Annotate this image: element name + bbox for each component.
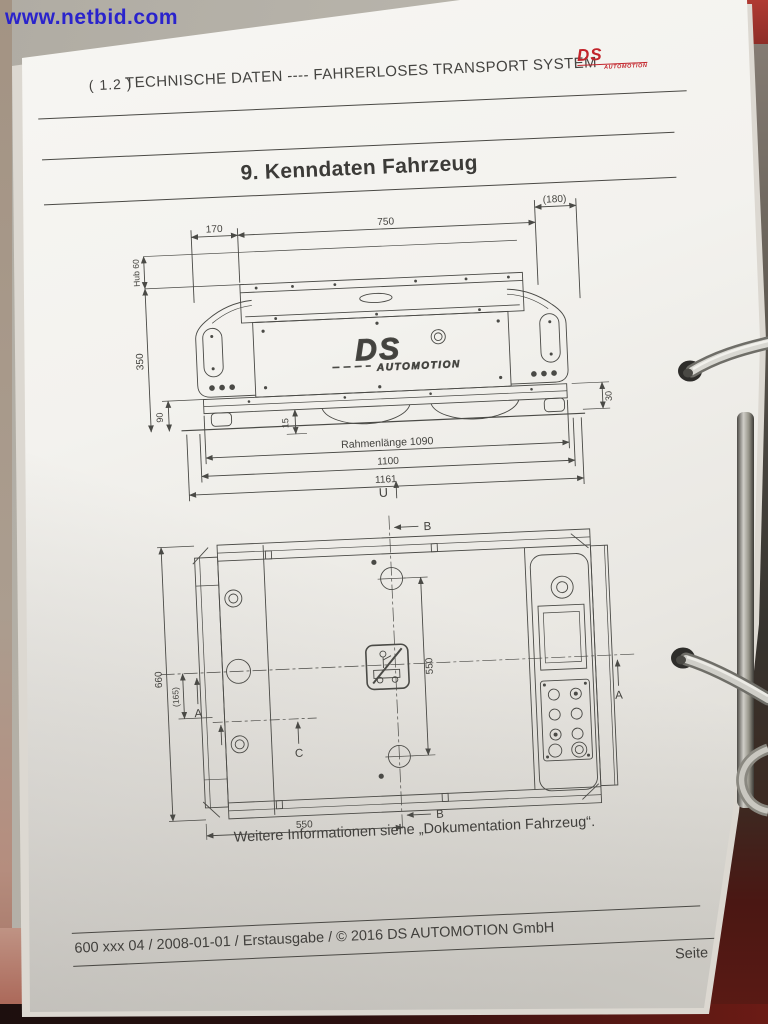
section-title: 9. Kenndaten Fahrzeug bbox=[240, 151, 478, 185]
dim-1161: 1161 bbox=[375, 474, 398, 486]
side-view-drawing: DS AUTOMOTION 170 750 (180) Hub 60 350 9… bbox=[119, 187, 637, 512]
top-view-centerlines bbox=[154, 505, 641, 839]
label-u: U bbox=[379, 486, 389, 500]
footer-document-id: 600 xxx 04 / 2008-01-01 / Erstausgabe / … bbox=[74, 920, 555, 957]
photo-left-edge bbox=[0, 0, 12, 1024]
vehicle-side-view: DS AUTOMOTION bbox=[175, 270, 585, 432]
body-logo-automotion: AUTOMOTION bbox=[376, 359, 461, 374]
binder-rod bbox=[737, 412, 754, 808]
no-riding-pictogram bbox=[366, 644, 410, 690]
dim-1100: 1100 bbox=[377, 456, 400, 468]
photo-of-manual-page: ( 1.2 ) TECHNISCHE DATEN ---- FAHRERLOSE… bbox=[0, 0, 768, 1024]
netbid-watermark: www.netbid.com bbox=[5, 6, 178, 30]
label-b-top: B bbox=[423, 521, 432, 533]
dim-90: 90 bbox=[155, 412, 165, 423]
vehicle-top-view bbox=[192, 528, 619, 820]
page-content: ( 1.2 ) TECHNISCHE DATEN ---- FAHRERLOSE… bbox=[27, 12, 734, 1024]
connector-panel bbox=[540, 679, 592, 761]
dim-180: (180) bbox=[543, 194, 567, 206]
dim-550-vertical: 550 bbox=[424, 657, 436, 675]
paper-sheet: ( 1.2 ) TECHNISCHE DATEN ---- FAHRERLOSE… bbox=[0, 0, 768, 1024]
label-a-left: A bbox=[194, 708, 203, 720]
top-view-dimension-lines bbox=[157, 518, 625, 842]
dim-170: 170 bbox=[206, 224, 224, 236]
label-b-bottom: B bbox=[436, 809, 445, 821]
dim-15: 15 bbox=[280, 418, 290, 429]
dim-660: 660 bbox=[153, 671, 165, 689]
dim-hub60: Hub 60 bbox=[131, 259, 142, 287]
label-a-right: A bbox=[615, 690, 624, 702]
ds-automotion-logo: DS AUTOMOTION bbox=[577, 44, 648, 73]
dim-165: (165) bbox=[170, 687, 181, 707]
dim-350: 350 bbox=[135, 353, 147, 371]
label-c: C bbox=[295, 748, 304, 760]
top-view-drawing: B B A A C 660 (165) 550 550 bbox=[146, 498, 660, 845]
dim-750: 750 bbox=[377, 216, 395, 228]
dim-30: 30 bbox=[603, 391, 613, 402]
